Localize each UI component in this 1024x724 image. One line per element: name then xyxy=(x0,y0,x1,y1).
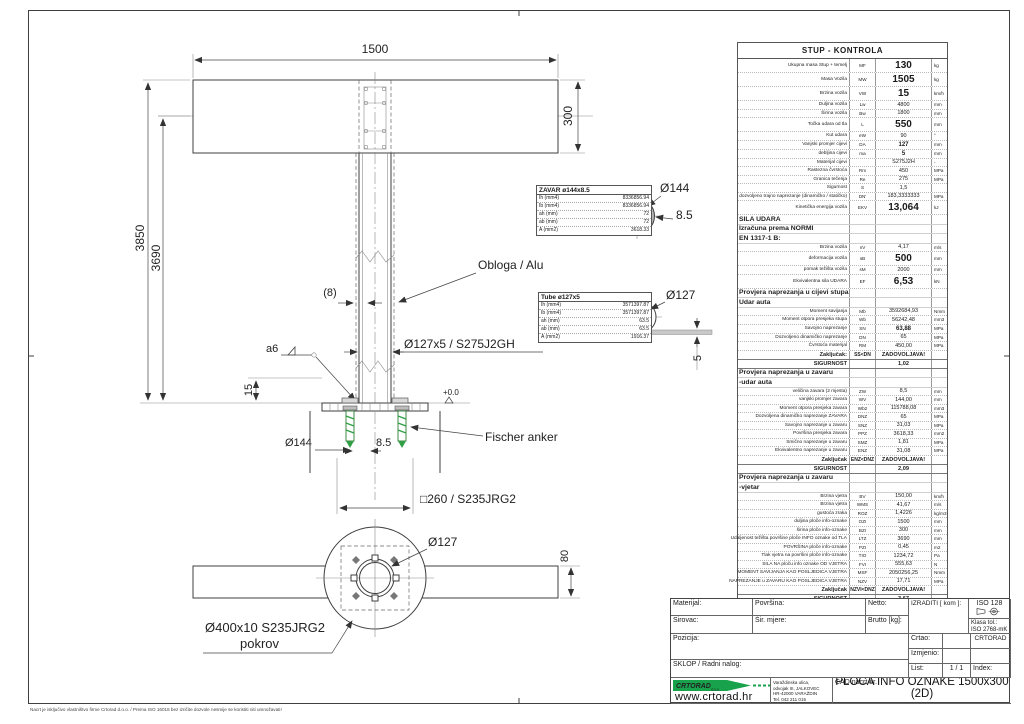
klasa-label: Klasa tol.: xyxy=(971,620,1008,627)
property-row: A (mm2)1916.37 xyxy=(539,334,651,342)
table-cell: 13,064 xyxy=(875,201,931,214)
table-cell: POVRŠINA ploče info-oznake xyxy=(738,544,849,552)
table-row: Brzina vozilanV4,17m/s xyxy=(738,244,947,253)
table-cell: Moment savijanja xyxy=(738,308,849,316)
table-cell: DN' xyxy=(849,193,875,201)
property-row: ab (mm)63.5 xyxy=(539,326,651,334)
table-cell: Brzina vjetra xyxy=(738,501,849,509)
table-cell: eW xyxy=(849,132,875,140)
table-cell: Moment otpora presjeka stupa xyxy=(738,316,849,324)
property-label: ah (mm) xyxy=(539,211,558,218)
table-cell xyxy=(849,289,875,298)
table-cell: nV xyxy=(849,244,875,252)
table-cell: -udar auta xyxy=(738,378,849,387)
property-value: 63.5 xyxy=(639,318,649,325)
table-cell: Brzina vjetra xyxy=(738,493,849,501)
table-row: MOMENT SAVIJANJA KAO POSLJEDICA VJETRAMS… xyxy=(738,569,947,578)
svg-text:CRTORAD: CRTORAD xyxy=(676,683,711,690)
table-cell: 1234,72 xyxy=(875,552,931,560)
list-label-cell: List: xyxy=(909,664,943,678)
table-cell: 15 xyxy=(875,87,931,100)
table-row: Moment savijanjaMb3592684,93Nmm xyxy=(738,308,947,317)
table-row: SILA NA ploču info oznake OD VJETRAFVI55… xyxy=(738,561,947,570)
pipe-spec-callout: Ø127x5 / S275J2GH xyxy=(344,337,543,352)
table-cell: 3592684,93 xyxy=(875,308,931,316)
table-cell: MPa xyxy=(931,578,947,586)
table-cell: sB xyxy=(849,252,875,265)
table-cell: km/h xyxy=(931,87,947,100)
table-row: -udar auta xyxy=(738,378,947,388)
table-row: Provjera naprezanja u cijevi stupa xyxy=(738,289,947,299)
table-row: vanjski promjer zavaraWV144,00mm xyxy=(738,396,947,405)
table-cell: NZV xyxy=(849,578,875,586)
table-row: Smično naprezanje u zavaruSMZ1,81MPa xyxy=(738,439,947,448)
table-cell: mm xyxy=(931,101,947,109)
table-cell: 41,67 xyxy=(875,501,931,509)
table-cell xyxy=(931,225,947,234)
table-cell xyxy=(875,289,931,298)
table-cell: SS<DN xyxy=(849,351,875,359)
level-text: +0.0 xyxy=(443,388,459,397)
table-cell: 4,17 xyxy=(875,244,931,252)
table-row: Brzina vozilaVW15km/h xyxy=(738,87,947,101)
table-cell: Čvrstoća materijal xyxy=(738,342,849,350)
table-cell: Sigurnost xyxy=(738,184,849,192)
klasa-cell: Klasa tol.: ISO 2768-mK xyxy=(969,619,1011,634)
table-cell: 31,08 xyxy=(875,447,931,455)
table-cell xyxy=(875,483,931,492)
table-cell: deformacija vozila xyxy=(738,252,849,265)
table-row: Udaljenost težišta površine ploče INFO o… xyxy=(738,535,947,544)
table-cell: MW xyxy=(849,73,875,86)
table-cell: EKV xyxy=(849,201,875,214)
stup-kontrola-table: STUP - KONTROLA Ukupna masa Stup + temel… xyxy=(737,42,948,605)
table-row: SIGURNOST1,02 xyxy=(738,360,947,369)
table-cell: 31,03 xyxy=(875,422,931,430)
table-cell: vanjski promjer zavara xyxy=(738,396,849,404)
level-marker: +0.0 xyxy=(443,388,459,403)
table-cell: MPa xyxy=(931,342,947,350)
table-cell: MSF xyxy=(849,569,875,577)
table-cell: 90 xyxy=(875,132,931,140)
table-cell xyxy=(931,483,947,492)
zavar-box-title: ZAVAR ø144x8.5 xyxy=(537,186,651,195)
table-cell xyxy=(849,465,875,473)
table-cell: 3618,33 xyxy=(875,430,931,438)
table-cell: NZVI<DNZ xyxy=(849,586,875,594)
table-cell: ZW xyxy=(849,388,875,396)
table-row: Masa VozilaMW1505kg xyxy=(738,73,947,87)
table-cell: kg/m3 xyxy=(931,510,947,518)
table-cell: 550 xyxy=(875,118,931,131)
table-cell: mm xyxy=(931,518,947,526)
table-cell xyxy=(849,360,875,368)
table-row: Provjera naprezanja u zavaru xyxy=(738,369,947,379)
company-website[interactable]: www.crtorad.hr xyxy=(675,691,753,703)
table-cell: kg xyxy=(931,73,947,86)
tube-box-rows: Ih (mm4)3571397.87Ib (mm4)3571397.87ah (… xyxy=(539,302,651,342)
table-cell: Točka udara od tla xyxy=(738,118,849,131)
table-cell xyxy=(875,298,931,307)
table-cell: 555,63 xyxy=(875,561,931,569)
table-row: SIGURNOST2,09 xyxy=(738,465,947,474)
table-cell: BZI xyxy=(849,527,875,535)
table-cell: Savojno naprezanje u zavaru xyxy=(738,422,849,430)
table-cell: MPa xyxy=(931,439,947,447)
table-cell: Ukupna masa Stup + temelj xyxy=(738,59,849,72)
table-cell: 1,81 xyxy=(875,439,931,447)
table-cell: ENZ xyxy=(849,447,875,455)
table-cell: MPa xyxy=(931,422,947,430)
table-cell: SILA UDARA xyxy=(738,215,849,224)
table-cell xyxy=(931,456,947,464)
table-cell xyxy=(931,474,947,483)
list-value-cell: 1 / 1 xyxy=(943,664,971,678)
table-cell: 275 xyxy=(875,176,931,184)
table-cell: Dozvoljena dinamičko naprezanje ZAVARA xyxy=(738,413,849,421)
table-row: Zaključak:SS<DNZADOVOLJAVA! xyxy=(738,351,947,360)
table-cell: Provjera naprezanja u cijevi stupa xyxy=(738,289,849,298)
table-cell: sM xyxy=(849,266,875,274)
table-cell xyxy=(931,184,947,192)
table-cell: EN 1317-1 B: xyxy=(738,234,849,243)
izmjenio-right-cell xyxy=(971,649,1011,664)
cladding-label: Obloga / Alu xyxy=(478,258,543,272)
weld-label: a6 xyxy=(266,343,278,355)
table-cell: mm xyxy=(931,118,947,131)
table-cell: ZADOVOLJAVA! xyxy=(875,456,931,464)
table-cell: MPa xyxy=(931,334,947,342)
table-row: Provjera naprezanja u zavaru xyxy=(738,474,947,484)
projection-symbol-icon xyxy=(975,607,1005,616)
table-cell: 1,4226 xyxy=(875,510,931,518)
detail-weld-size-label: 8.5 xyxy=(676,208,693,222)
table-cell: S xyxy=(849,184,875,192)
table-cell: SNZ xyxy=(849,422,875,430)
cad-title-cell: CAD nacrt br. PLOČA INFO OZNAKE 1500x300… xyxy=(833,678,1011,704)
property-row: A (mm2)3618.33 xyxy=(537,227,651,235)
table-cell: gustoća zraka xyxy=(738,510,849,518)
tube-box-title: Tube ø127x5 xyxy=(539,293,651,302)
table-cell: Re xyxy=(849,176,875,184)
table-cell: PPZ xyxy=(849,430,875,438)
cover-callout: Ø400x10 S235JRG2 pokrov xyxy=(203,620,352,653)
table-cell: 65 xyxy=(875,413,931,421)
table-cell xyxy=(875,474,931,483)
table-cell xyxy=(849,234,875,243)
table-cell: Smično naprezanje u zavaru xyxy=(738,439,849,447)
table-cell: mm xyxy=(931,388,947,396)
table-cell: kg xyxy=(931,59,947,72)
table-row: Točka udara od tlaL550mm xyxy=(738,118,947,132)
table-row: Vanjski promjer cijeviDA127mm xyxy=(738,141,947,150)
table-cell: Vanjski promjer cijevi xyxy=(738,141,849,149)
table-row: ZaključakNZVI<DNZZADOVOLJAVA! xyxy=(738,586,947,595)
table-cell: 1,02 xyxy=(875,360,931,368)
table-cell: Moment otpora presjeka zavara xyxy=(738,405,849,413)
table-cell: 2,09 xyxy=(875,465,931,473)
cad-sheet: { "frame": { "disclaimer": "Nacrt je isk… xyxy=(0,0,1024,724)
table-row: Dozvoljena dinamičko naprezanje ZAVARADN… xyxy=(738,413,947,422)
table-cell xyxy=(875,378,931,387)
table-cell: 65 xyxy=(875,334,931,342)
table-cell: 1,5 xyxy=(875,184,931,192)
base-assembly xyxy=(300,398,470,473)
table-row: -vjetar xyxy=(738,483,947,493)
dim-plate-width: 1500 xyxy=(193,42,558,78)
table-row: Brzina vjetraBV150,00km/h xyxy=(738,493,947,502)
table-row: Savojno naprezanjeSN63,88MPa xyxy=(738,325,947,334)
table-row: Kinetička energija vozilaEKV13,064kJ xyxy=(738,201,947,215)
table-cell: SIGURNOST xyxy=(738,465,849,473)
table-cell: Wb xyxy=(849,316,875,324)
table-row: dozvoljeno trajno naprezanje (dinamičko … xyxy=(738,193,947,202)
property-row: ah (mm)63.5 xyxy=(539,318,651,326)
sklop-cell: SKLOP / Radni nalog: xyxy=(671,660,909,678)
sirovac-cell: Sirovac: xyxy=(671,616,753,634)
table-cell xyxy=(931,215,947,224)
table-row: ZaključakENZ<DNZZADOVOLJAVA! xyxy=(738,456,947,465)
table-cell: Brzina vozila xyxy=(738,87,849,100)
table-cell xyxy=(849,378,875,387)
table-cell: Tlak vjetra na površini ploče info-oznak… xyxy=(738,552,849,560)
stup-kontrola-title: STUP - KONTROLA xyxy=(738,43,947,59)
pipe-spec-label: Ø127x5 / S275J2GH xyxy=(404,337,515,351)
table-cell: TIO xyxy=(849,552,875,560)
table-cell: Granica tečenja xyxy=(738,176,849,184)
table-cell: MPa xyxy=(931,167,947,175)
table-cell: Brzina vozila xyxy=(738,244,849,252)
table-cell: ZADOVOLJAVA! xyxy=(875,351,931,359)
table-cell xyxy=(931,351,947,359)
table-row: Rastezna čvrstoćaRm450MPa xyxy=(738,167,947,176)
dim-300: 300 xyxy=(561,106,575,126)
table-row: Ukupna masa Stup + temeljMF130kg xyxy=(738,59,947,73)
table-cell: mm xyxy=(931,535,947,543)
izmjenio-value-cell xyxy=(943,649,971,664)
table-cell: Materijal cijevi xyxy=(738,159,849,167)
table-row: duljina ploče info-oznakeOZI1500mm xyxy=(738,518,947,527)
table-row: Površina presjeka zavaraPPZ3618,33mm2 xyxy=(738,430,947,439)
table-cell: FVI xyxy=(849,561,875,569)
detail-weld-dia-label: Ø144 xyxy=(660,181,690,195)
table-cell: DA xyxy=(849,141,875,149)
table-cell: 56242,48 xyxy=(875,316,931,324)
table-row: POVRŠINA ploče info-oznakePZI0,45m2 xyxy=(738,544,947,553)
table-cell: 450,00 xyxy=(875,342,931,350)
crtao-label-cell: Crtao: xyxy=(909,634,943,649)
dim-base-square: □260 / S235JRG2 xyxy=(337,458,516,514)
table-cell: 17,71 xyxy=(875,578,931,586)
sir-mjere-cell: Šir. mjere: xyxy=(753,616,866,634)
table-row: Moment otpora presjeka stupaWb56242,48mm… xyxy=(738,316,947,325)
table-cell: Provjera naprezanja u zavaru xyxy=(738,369,849,378)
table-cell: 115788,08 xyxy=(875,405,931,413)
table-cell: Zaključak xyxy=(738,586,849,594)
property-row: ah (mm)72 xyxy=(537,211,651,219)
property-label: Ib (mm4) xyxy=(539,203,559,210)
table-cell: 1500 xyxy=(875,518,931,526)
table-cell: DNZ xyxy=(849,413,875,421)
table-cell: Rm xyxy=(849,167,875,175)
table-cell: mm xyxy=(931,252,947,265)
table-cell: Udar auta xyxy=(738,298,849,307)
property-label: ab (mm) xyxy=(541,326,560,333)
table-cell: Bw xyxy=(849,110,875,118)
table-cell xyxy=(931,378,947,387)
table-cell: mm xyxy=(931,110,947,118)
title-block: Materijal: Površina: Netto: IZRADITI [ k… xyxy=(670,598,1010,703)
table-cell: ZADOVOLJAVA! xyxy=(875,586,931,594)
table-cell: duljina ploče info-oznake xyxy=(738,518,849,526)
dim-15: 15 xyxy=(243,378,322,400)
table-cell: 8,5 xyxy=(875,388,931,396)
dim-base-dia-text: Ø144 xyxy=(285,437,312,449)
table-cell: m/s xyxy=(931,501,947,509)
iso-label: ISO 128 xyxy=(977,600,1003,607)
dim-cladding-gap: (8) xyxy=(323,287,382,303)
table-cell: dozvoljeno trajno naprezanje (dinamičko … xyxy=(738,193,849,201)
property-label: ab (mm) xyxy=(539,219,558,226)
table-row: Tlak vjetra na površini ploče info-oznak… xyxy=(738,552,947,561)
table-cell: MPa xyxy=(931,413,947,421)
iso-cell: ISO 128 xyxy=(969,599,1011,619)
table-cell: MPa xyxy=(931,176,947,184)
property-value: 3571397.87 xyxy=(623,302,649,309)
table-cell: - xyxy=(931,159,947,167)
table-cell: km/h xyxy=(931,493,947,501)
property-value: 72 xyxy=(643,219,649,226)
table-cell: širina ploče info-oznake xyxy=(738,527,849,535)
dim-3850: 3850 xyxy=(133,224,147,251)
dim-base-weld: Ø144 8.5 xyxy=(285,437,391,451)
table-cell: MPa xyxy=(931,193,947,201)
weld-callout: a6 xyxy=(266,343,355,400)
crtao-value-cell: CRTORAD xyxy=(971,634,1011,649)
property-value: 3618.33 xyxy=(631,227,649,235)
table-cell: ma xyxy=(849,150,875,158)
table-row: širina ploče info-oznakeBZI300mm xyxy=(738,527,947,536)
property-value: 72 xyxy=(643,211,649,218)
tube-properties-box: Tube ø127x5 Ih (mm4)3571397.87Ib (mm4)35… xyxy=(538,292,652,343)
anchor-label: Fischer anker xyxy=(485,430,558,444)
table-cell: Wb2 xyxy=(849,405,875,413)
table-cell xyxy=(849,159,875,167)
table-cell: ROZ xyxy=(849,510,875,518)
property-label: Ib (mm4) xyxy=(541,310,561,317)
izraditi-cell: IZRADITI [ kom ]: xyxy=(909,599,969,634)
zavar-properties-box: ZAVAR ø144x8.5 Ih (mm4)8336856.94Ib (mm4… xyxy=(536,185,652,236)
table-cell xyxy=(931,234,947,243)
table-cell: veličina zavara (2 mjesta) xyxy=(738,388,849,396)
company-logo-cell: CRTORAD d.o.o. www.crtorad.hr xyxy=(671,678,771,704)
pole-dia-label: Ø127 xyxy=(428,535,458,549)
property-label: ah (mm) xyxy=(541,318,560,325)
table-cell: L xyxy=(849,118,875,131)
table-row: pomak težišta vozilasM2000mm xyxy=(738,266,947,275)
table-cell: -vjetar xyxy=(738,483,849,492)
detail-sheet-thickness-label: 5 xyxy=(692,355,704,361)
table-cell: ° xyxy=(931,132,947,140)
table-cell: m/s xyxy=(931,244,947,252)
table-cell: 144,00 xyxy=(875,396,931,404)
copyright-disclaimer: Nacrt je isključivo vlastništvo firme Cr… xyxy=(30,707,282,712)
table-row: Ekvivalentna sila UDARAEF6,53kN xyxy=(738,275,947,289)
table-cell xyxy=(849,474,875,483)
property-label: Ih (mm4) xyxy=(539,195,559,202)
table-cell: mm3 xyxy=(931,405,947,413)
dim-3690: 3690 xyxy=(149,244,163,271)
property-value: 1916.37 xyxy=(631,334,649,342)
table-cell: N xyxy=(931,561,947,569)
table-cell: mm xyxy=(931,266,947,274)
table-cell: 2050256,25 xyxy=(875,569,931,577)
table-cell xyxy=(849,483,875,492)
property-value: 63.5 xyxy=(639,326,649,333)
property-row: Ib (mm4)3571397.87 xyxy=(539,310,651,318)
table-cell: 150,00 xyxy=(875,493,931,501)
table-cell: mm3 xyxy=(931,316,947,324)
table-cell: MOMENT SAVIJANJA KAO POSLJEDICA VJETRA xyxy=(738,569,849,577)
table-cell xyxy=(849,369,875,378)
property-row: Ih (mm4)8336856.94 xyxy=(537,195,651,203)
table-row: Širina vozilaBw1800mm xyxy=(738,110,947,119)
stup-kontrola-rows: Ukupna masa Stup + temeljMF130kgMasa Voz… xyxy=(738,59,947,604)
table-cell: Zaključak: xyxy=(738,351,849,359)
table-row: debljina cijevima5mm xyxy=(738,150,947,159)
drawing-title: PLOČA INFO OZNAKE 1500x300 (2D) xyxy=(833,678,1011,700)
table-cell: m2 xyxy=(931,544,947,552)
table-cell: EF xyxy=(849,275,875,288)
table-cell: Površina presjeka zavara xyxy=(738,430,849,438)
table-cell: kN xyxy=(931,275,947,288)
table-cell: pomak težišta vozila xyxy=(738,266,849,274)
table-row: veličina zavara (2 mjesta)ZW8,5mm xyxy=(738,388,947,397)
table-cell: MPa xyxy=(931,447,947,455)
table-row: Izračuna prema NORMI xyxy=(738,225,947,235)
table-row: Čvrstoća materijalRM450,00MPa xyxy=(738,342,947,351)
table-cell: 300 xyxy=(875,527,931,535)
property-row: ab (mm)72 xyxy=(537,219,651,227)
table-cell xyxy=(875,215,931,224)
table-cell: Kinetička energija vozila xyxy=(738,201,849,214)
table-row: Brzina vjetraWMS41,67m/s xyxy=(738,501,947,510)
cover-label-2: pokrov xyxy=(240,636,280,651)
table-cell: Izračuna prema NORMI xyxy=(738,225,849,234)
table-row: SILA UDARA xyxy=(738,215,947,225)
table-cell: DN xyxy=(849,334,875,342)
table-row: NAPREZANJE u ZAVARU KAO POSLJEDICA VJETR… xyxy=(738,578,947,587)
table-cell xyxy=(931,360,947,368)
table-cell: mm2 xyxy=(931,430,947,438)
table-row: gustoća zrakaROZ1,4226kg/m3 xyxy=(738,510,947,519)
table-cell: LTZ xyxy=(849,535,875,543)
table-row: Materijal cijeviS275J2H- xyxy=(738,159,947,168)
address-line: Tel. 042 211 015 xyxy=(773,697,830,703)
table-cell xyxy=(849,215,875,224)
table-cell: RM xyxy=(849,342,875,350)
table-cell: Ekvivalentno naprezanje u zavaru xyxy=(738,447,849,455)
table-cell: mm xyxy=(931,527,947,535)
table-cell: mm xyxy=(931,396,947,404)
sign-front-view xyxy=(158,80,593,153)
table-cell xyxy=(931,369,947,378)
dim-15-text: 15 xyxy=(243,384,255,396)
property-label: Ih (mm4) xyxy=(541,302,561,309)
table-cell: 500 xyxy=(875,252,931,265)
table-cell: 450 xyxy=(875,167,931,175)
table-cell: 5 xyxy=(875,150,931,158)
